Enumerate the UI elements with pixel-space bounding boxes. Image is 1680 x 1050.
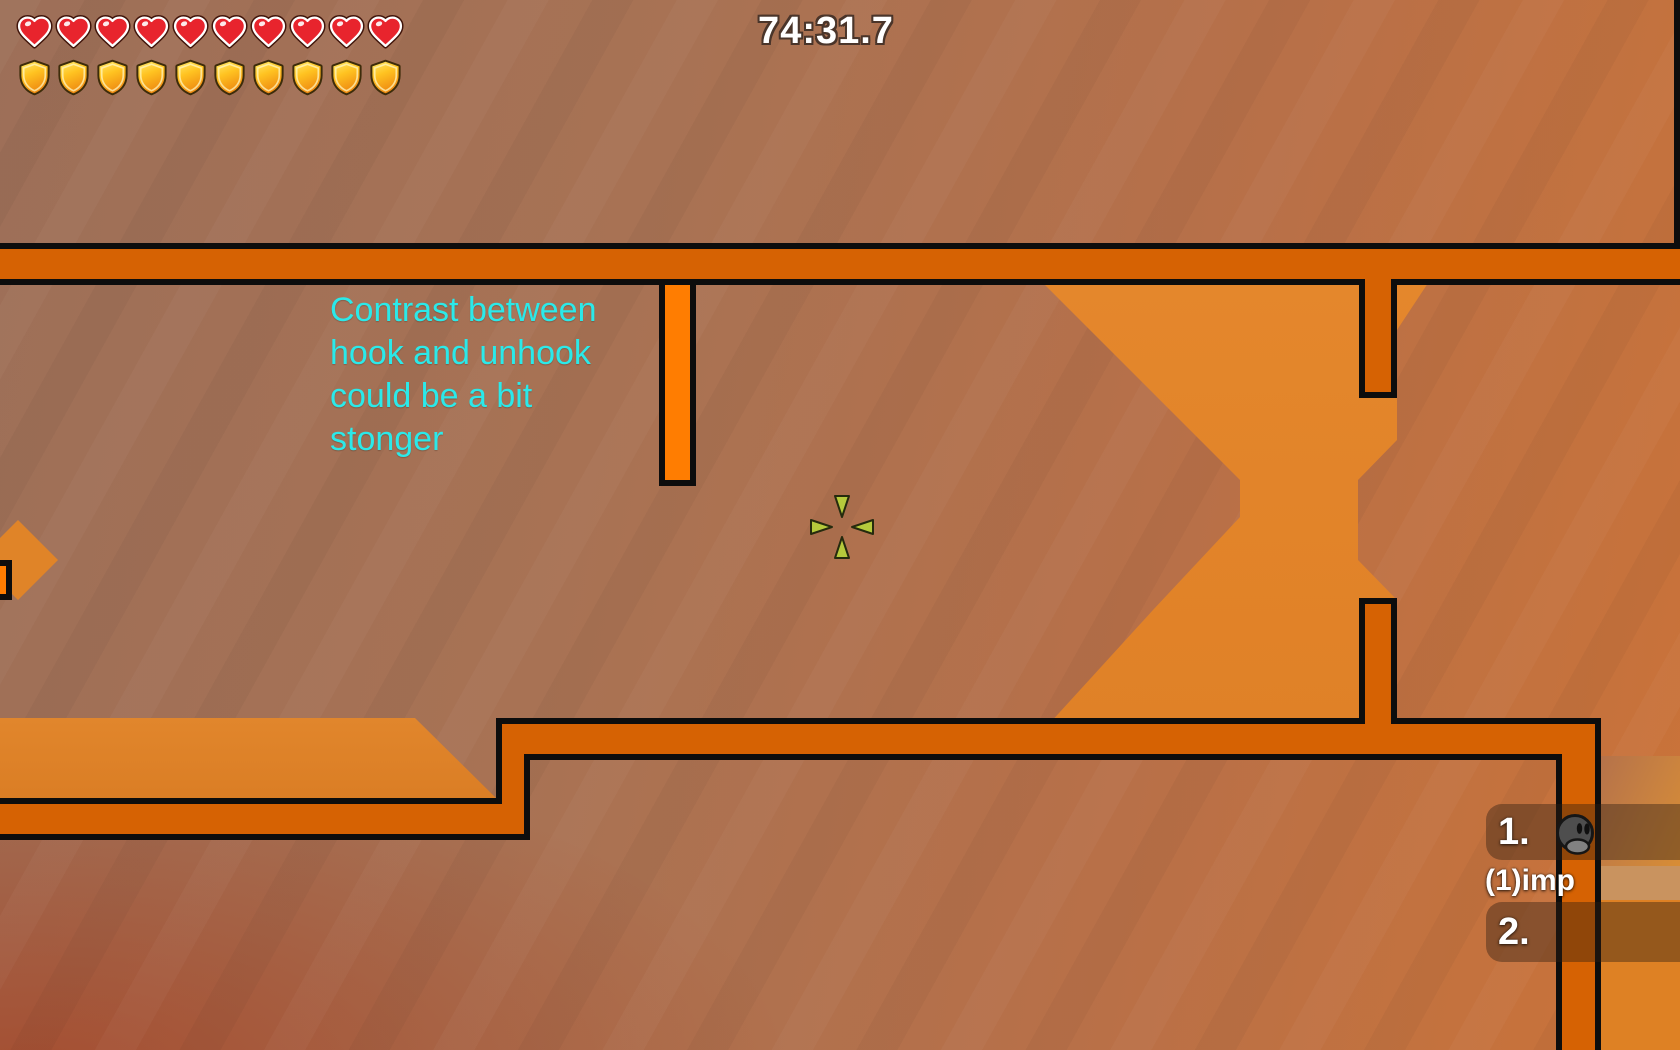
map-bg-ramp-quad [0,718,500,804]
shield-icon [289,59,326,96]
heart-icon [172,13,209,50]
shield-icon [16,59,53,96]
spectated-player-name: (1)imp [1485,864,1575,898]
map-step-outline-right [524,754,530,840]
map-stub-c-outline-right [1391,598,1397,724]
heart-icon [328,13,365,50]
map-stub-b-fill [1365,249,1391,392]
map-column-outline-right [1595,718,1601,1050]
shield-icon [94,59,131,96]
crosshair-icon [802,487,882,567]
map-top-bar-fill [0,249,1680,279]
shield-icon [133,59,170,96]
spectator-rank-2: 2. [1498,911,1530,953]
health-row [16,13,404,50]
map-stub-b-outline-right [1391,279,1397,398]
map-left-stub-fill [0,566,6,594]
heart-icon [289,13,326,50]
heart-icon [55,13,92,50]
map-unhookable-stub-fill [665,285,690,480]
broadcast-message: Contrast between hook and unhook could b… [330,289,597,461]
map-right-wall [1674,0,1680,246]
heart-icon [250,13,287,50]
armor-row [16,59,404,96]
shield-icon [172,59,209,96]
game-viewport[interactable]: 74:31.7 Contrast between hook and unhook… [0,0,1680,1050]
shield-icon [211,59,248,96]
spectator-rank-1: 1. [1498,811,1530,853]
map-stub-b-outline-left [1359,279,1365,398]
shield-icon [55,59,92,96]
map-lower-left-bar-fill [0,804,524,834]
heart-icon [94,13,131,50]
heart-icon [211,13,248,50]
map-stub-b-outline-bottom [1359,392,1397,398]
heart-icon [133,13,170,50]
shield-icon [367,59,404,96]
heart-icon [16,13,53,50]
heart-icon [367,13,404,50]
map-bg-right-band [1601,866,1680,900]
map-stub-c-fill [1365,604,1391,730]
shield-icon [328,59,365,96]
tee-avatar [1551,809,1599,857]
shield-icon [250,59,287,96]
map-lower-left-bar-outline-bottom [0,834,530,840]
map-top-bar-outline-bottom-right [1397,279,1680,285]
race-timer: 74:31.7 [758,10,894,53]
map-lower-bar-outline-bottom [530,754,1556,760]
spectator-row-2[interactable]: 2. [1486,902,1680,962]
map-lower-bar-fill [502,724,1595,754]
